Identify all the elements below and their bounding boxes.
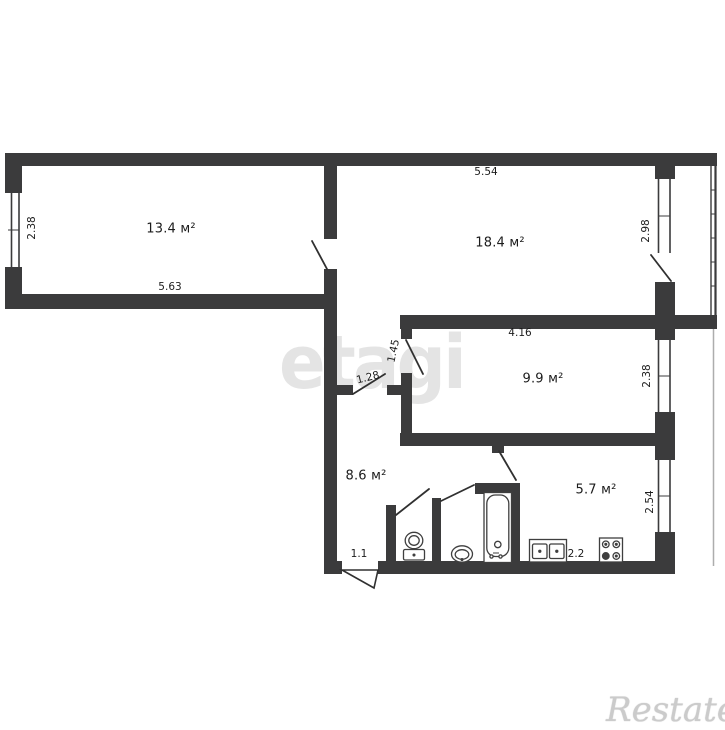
wall-segment: [5, 153, 22, 193]
wall-segment: [400, 433, 675, 446]
wall-segment: [655, 166, 675, 179]
watermark-restate: Restate: [606, 690, 725, 730]
walls: [5, 153, 717, 574]
wall-segment: [492, 443, 504, 453]
room-area-label-living1: 13.4 м²: [146, 223, 196, 236]
dimension-label-room1-width: 2.38: [27, 216, 38, 239]
floor-plan-drawing: [0, 0, 725, 725]
kitchen-sink-fixture: [530, 540, 567, 563]
window-room1: [8, 193, 19, 267]
wall-segment: [333, 385, 353, 395]
window-room2: [659, 179, 671, 253]
washbasin-fixture: [452, 546, 473, 562]
stove-fixture: [600, 538, 623, 562]
toilet-fixture: [404, 532, 425, 560]
room-area-label-bedroom: 9.9 м²: [522, 373, 563, 386]
dimension-label-room2-length: 5.54: [474, 167, 497, 178]
room-area-label-kitchen: 5.7 м²: [575, 484, 616, 497]
wall-segment: [324, 269, 337, 574]
wall-segment: [655, 412, 675, 460]
balcony: [711, 160, 716, 566]
window-kitchen: [659, 460, 671, 532]
dimension-label-room2-width: 2.98: [641, 219, 652, 242]
door-room3: [406, 340, 423, 374]
floor-plan-image: etagi: [0, 0, 725, 725]
room-area-label-living2: 18.4 м²: [475, 237, 525, 250]
wall-segment: [432, 498, 441, 563]
wall-segment: [5, 153, 717, 166]
door-room1: [312, 241, 327, 269]
wall-segment: [324, 153, 337, 239]
window-room3: [659, 340, 671, 412]
wall-segment: [655, 282, 675, 340]
wall-segment: [378, 561, 675, 574]
dimension-label-entry-width: 1.1: [351, 549, 368, 560]
wall-segment: [5, 294, 337, 309]
windows: [8, 179, 670, 532]
wall-segment: [401, 315, 412, 339]
dimension-label-kitchen-length: 2.2: [568, 549, 585, 560]
door-balcony: [651, 255, 671, 281]
dimension-label-room1-length: 5.63: [158, 282, 181, 293]
door-entrance: [342, 570, 378, 588]
wall-segment: [325, 561, 342, 574]
door-kitchen: [499, 451, 516, 480]
wall-segment: [386, 505, 396, 563]
room-area-label-hallway: 8.6 м²: [345, 470, 386, 483]
dimension-label-room3-length: 4.16: [508, 328, 531, 339]
door-wc: [396, 489, 429, 515]
door-bathroom: [441, 485, 474, 501]
dimension-label-room3-width: 2.38: [642, 364, 653, 387]
dimension-label-kitchen-width: 2.54: [645, 490, 656, 513]
bathtub-fixture: [484, 493, 512, 563]
